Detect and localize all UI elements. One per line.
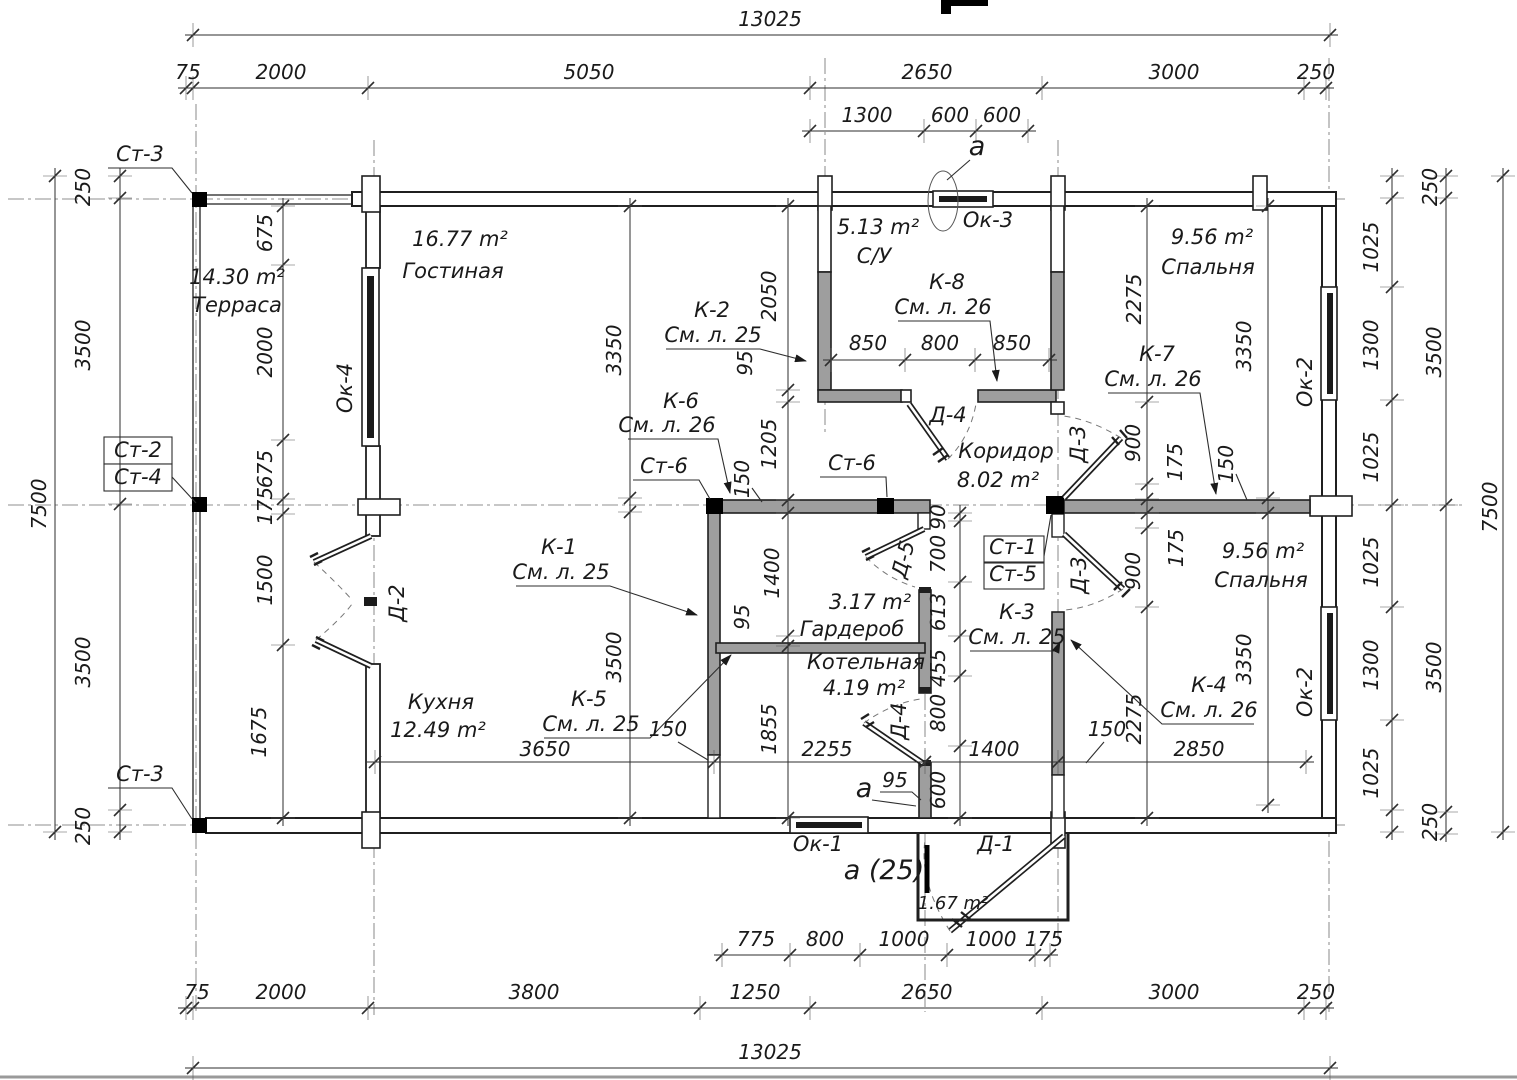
- room-corridor-name: Коридор: [958, 439, 1053, 463]
- dim-label: 1025: [1359, 222, 1383, 273]
- construction-k4-ref: См. л. 26: [1160, 698, 1257, 722]
- dim-label: 90: [926, 504, 950, 529]
- section-mark-a25: а (25): [844, 855, 925, 886]
- dim-label: 675: [253, 214, 277, 252]
- wall-corridor-east-stub: [1052, 514, 1064, 537]
- dim-label: 7500: [27, 479, 51, 530]
- room-bedroom1-name: Спальня: [1161, 255, 1254, 279]
- dim-label: 250: [1297, 980, 1335, 1004]
- door-d4-bottom-label: Д-4: [887, 702, 911, 740]
- dim-label: 95: [730, 604, 754, 629]
- dim-label: 3350: [1232, 634, 1256, 685]
- room-wc-area: 5.13 m²: [837, 215, 920, 239]
- dim-label: 175: [253, 487, 277, 525]
- dim-label: 150: [1088, 717, 1126, 741]
- section-mark-a-bottom: а: [856, 773, 873, 804]
- room-porch-area: 1.67 m²: [918, 893, 989, 914]
- dim-label: 1400: [760, 548, 784, 599]
- construction-k5-ref: См. л. 25: [542, 712, 639, 736]
- dim-label: 150: [1214, 445, 1238, 483]
- dim-label: 250: [71, 168, 95, 206]
- room-bedroom2-name: Спальня: [1214, 568, 1307, 592]
- dim-label: 175: [1164, 529, 1188, 567]
- dim-label: 2255: [802, 737, 853, 761]
- window-ok2-bottom: [1321, 607, 1337, 720]
- dim-label: 3350: [602, 325, 626, 376]
- column-st6-right: [877, 498, 894, 514]
- construction-k7-ref: См. л. 26: [1104, 367, 1201, 391]
- dim-label: 1025: [1359, 748, 1383, 799]
- dim-label: 3000: [1149, 980, 1200, 1004]
- wall-bedrooms-divider: [1064, 500, 1310, 513]
- window-ok2-top-label: Ок-2: [1293, 357, 1317, 407]
- dim-label: 1300: [842, 103, 893, 127]
- dim-label: 250: [1418, 168, 1442, 206]
- dim-label: 850: [849, 331, 887, 355]
- dim-label: 613: [926, 593, 950, 631]
- room-corridor-area: 8.02 m²: [957, 468, 1040, 492]
- wall-exterior-top: [352, 192, 1336, 206]
- construction-k1-label: К-1: [541, 535, 577, 559]
- dim-label: 2650: [902, 60, 953, 84]
- column-st5-label: Ст-5: [989, 562, 1037, 586]
- construction-k6-ref: См. л. 26: [618, 413, 715, 437]
- window-ok3: [933, 191, 993, 207]
- dim-label: 455: [926, 649, 950, 687]
- room-bedroom1-area: 9.56 m²: [1171, 225, 1254, 249]
- column-st1-st5: [1046, 496, 1064, 514]
- window-ok2-bottom-label: Ок-2: [1293, 667, 1317, 717]
- north-flag-icon: [941, 0, 951, 14]
- dim-label: 1400: [969, 737, 1020, 761]
- dim-label: 2000: [256, 60, 307, 84]
- door-d2-label: Д-2: [385, 584, 409, 622]
- dim-label: 775: [737, 927, 775, 951]
- dim-label: 75: [175, 60, 200, 84]
- dim-label: 900: [1121, 552, 1145, 590]
- dim-label: 7500: [1478, 482, 1502, 533]
- dim-label: 250: [1418, 803, 1442, 841]
- dim-label: 1205: [757, 419, 781, 470]
- dim-label: 250: [71, 807, 95, 845]
- dim-label: 75: [184, 980, 209, 1004]
- dim-label: 800: [926, 694, 950, 732]
- section-mark-a-top: а: [969, 131, 986, 162]
- window-ok1: [790, 817, 868, 833]
- dim-label: 2000: [253, 327, 277, 378]
- column-st1-label: Ст-1: [989, 535, 1037, 559]
- dim-label: 600: [926, 771, 950, 809]
- dim-label: 800: [921, 331, 959, 355]
- dim-label: 1855: [757, 704, 781, 755]
- dim-label: 800: [806, 927, 844, 951]
- room-living-area: 16.77 m²: [412, 227, 508, 251]
- dim-overall-top: 13025: [738, 7, 802, 31]
- dim-label: 150: [649, 717, 687, 741]
- door-d1-label: Д-1: [976, 832, 1014, 856]
- dim-label: 3500: [71, 637, 95, 688]
- wall-corridor-east-cap: [1052, 775, 1064, 818]
- column-st3-top: [192, 192, 207, 207]
- column-st6-left-label: Ст-6: [640, 454, 688, 478]
- room-boiler-area: 4.19 m²: [823, 676, 906, 700]
- door-d4-top-label: Д-4: [928, 403, 966, 427]
- dim-label: 3500: [71, 320, 95, 371]
- column-st6-right-label: Ст-6: [828, 451, 876, 475]
- window-ok3-label: Ок-3: [963, 208, 1013, 232]
- column-st2-label: Ст-2: [114, 438, 162, 462]
- floor-plan-sheet: 1302575200050502650300025013006006007758…: [0, 0, 1517, 1080]
- dim-label: 1025: [1359, 432, 1383, 483]
- dim-label: 3500: [1422, 327, 1446, 378]
- dim-label: 3000: [1149, 60, 1200, 84]
- room-boiler-name: Котельная: [807, 650, 925, 674]
- column-st3-bottom: [192, 818, 207, 833]
- dim-overall-bottom: 13025: [738, 1040, 802, 1064]
- dim-label: 2050: [757, 271, 781, 322]
- construction-k3-label: К-3: [999, 600, 1035, 624]
- dim-label: 1500: [253, 555, 277, 606]
- room-kitchen-name: Кухня: [408, 690, 474, 714]
- dim-label: 175: [1025, 927, 1063, 951]
- window-ok2-top: [1321, 287, 1337, 400]
- dim-label: 175: [1163, 443, 1187, 481]
- dim-label: 5050: [564, 60, 615, 84]
- construction-k3-ref: См. л. 25: [968, 625, 1065, 649]
- dim-label: 675: [253, 450, 277, 488]
- wall-wardrobe-north: [708, 500, 930, 513]
- column-st3-top-label: Ст-3: [116, 142, 164, 166]
- construction-k8-ref: См. л. 26: [894, 295, 991, 319]
- dim-label: 250: [1297, 60, 1335, 84]
- construction-k6-label: К-6: [663, 389, 699, 413]
- dim-label: 2000: [256, 980, 307, 1004]
- dim-label: 3500: [602, 632, 626, 683]
- dim-label: 2650: [902, 980, 953, 1004]
- floor-plan-drawing: 1302575200050502650300025013006006007758…: [0, 0, 1517, 1080]
- construction-k1-ref: См. л. 25: [512, 560, 609, 584]
- construction-k7-label: К-7: [1139, 342, 1175, 366]
- construction-k2-ref: См. л. 25: [664, 323, 761, 347]
- dim-label: 1300: [1359, 640, 1383, 691]
- dim-label: 3350: [1232, 321, 1256, 372]
- construction-k5-label: К-5: [571, 687, 607, 711]
- dim-label: 1675: [247, 707, 271, 758]
- dim-label: 2850: [1174, 737, 1225, 761]
- construction-k8-label: К-8: [929, 270, 965, 294]
- column-st2-st4: [192, 497, 207, 512]
- construction-k2-label: К-2: [694, 298, 730, 322]
- dim-label: 95: [733, 350, 757, 375]
- room-living-name: Гостиная: [402, 259, 503, 283]
- room-bedroom2-area: 9.56 m²: [1222, 539, 1305, 563]
- dim-label: 900: [1121, 424, 1145, 462]
- dim-label: 3650: [520, 737, 571, 761]
- dim-label: 3800: [509, 980, 560, 1004]
- dim-label: 600: [931, 103, 969, 127]
- dim-label: 95: [882, 768, 907, 792]
- room-wc-name: С/У: [857, 244, 893, 268]
- dim-label: 700: [926, 535, 950, 573]
- dim-label: 1025: [1359, 537, 1383, 588]
- window-ok4-label: Ок-4: [333, 363, 357, 413]
- north-flag-icon-bar: [950, 0, 988, 6]
- column-st6-left: [706, 498, 723, 514]
- dim-label: 1300: [1359, 320, 1383, 371]
- column-st3-bottom-label: Ст-3: [116, 762, 164, 786]
- dim-label: 2275: [1122, 274, 1146, 325]
- construction-k4-label: К-4: [1191, 673, 1227, 697]
- dim-label: 1000: [879, 927, 930, 951]
- dim-label: 850: [993, 331, 1031, 355]
- dim-label: 1000: [966, 927, 1017, 951]
- room-terrace-area: 14.30 m²: [189, 265, 285, 289]
- room-terrace-name: Терраса: [192, 293, 282, 317]
- room-wardrobe-area: 3.17 m²: [829, 590, 912, 614]
- dim-label: 150: [730, 460, 754, 498]
- dim-label: 1250: [730, 980, 781, 1004]
- dim-label: 3500: [1422, 642, 1446, 693]
- door-d3-bottom-label: Д-3: [1067, 556, 1091, 594]
- room-kitchen-area: 12.49 m²: [390, 718, 486, 742]
- door-d3-top-label: Д-3: [1066, 425, 1090, 463]
- room-wardrobe-name: Гардероб: [800, 617, 905, 641]
- dim-label: 600: [983, 103, 1021, 127]
- window-ok4: [362, 268, 379, 446]
- window-ok1-label: Ок-1: [793, 832, 843, 856]
- column-st4-label: Ст-4: [114, 465, 162, 489]
- wall-kitchen-east: [708, 513, 720, 755]
